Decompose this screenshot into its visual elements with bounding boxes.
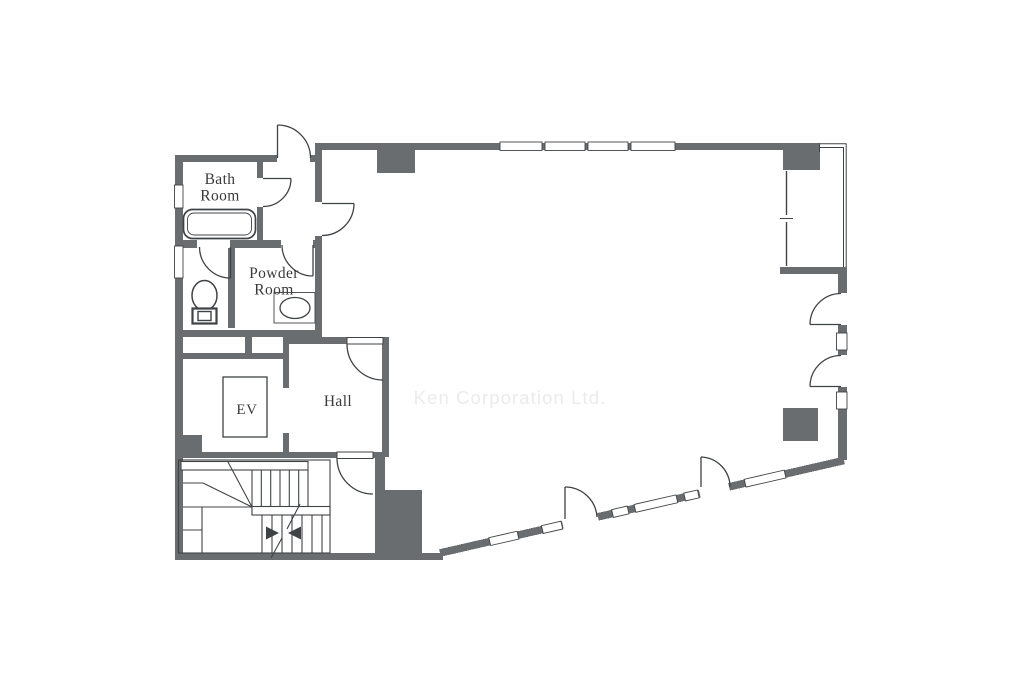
wall-segment [257,162,263,178]
wall-segment [382,337,389,457]
window [631,142,675,151]
wall-segment [175,353,285,359]
wall-segment [283,433,289,453]
balcony-outer-wall [820,144,847,267]
wall-segment [245,337,252,353]
bath-room-label: BathRoom [200,171,240,205]
windows-group [175,142,848,546]
wall-segment [230,240,281,248]
door-leaf [337,452,373,459]
window [744,470,786,487]
bathtub-icon [184,210,256,239]
wall-segment [780,267,847,274]
floorplan-svg: BathRoom PowderRoom EV Hall Ken Corporat… [0,0,1024,683]
pillar [783,143,820,170]
balcony-inner-wall [820,148,844,268]
door-opening [837,293,848,325]
diagonal-door-right [701,457,730,487]
floorplan-page: BathRoom PowderRoom EV Hall Ken Corporat… [0,0,1024,683]
window [489,531,519,545]
wall-segment [175,330,322,337]
window [634,495,678,512]
toilet-icon [192,281,217,324]
entrance-door [278,125,311,158]
window [545,142,585,151]
wall-segment [175,155,277,162]
pillar [178,435,202,452]
right-door-upper [810,294,841,325]
window [175,246,184,278]
wall-segment [373,452,385,458]
stair-direction-arrows [266,527,301,540]
walls-group [175,143,847,560]
window [175,185,184,208]
wall-segment [175,553,443,560]
hall-bottom-door-arc [337,458,373,494]
window [837,392,848,409]
door-opening [562,513,599,529]
window [684,490,699,501]
hall-top-door-arc [347,344,383,380]
right-door-lower [810,356,841,387]
wall-segment [315,236,322,337]
wall-segment [385,490,422,553]
door-leaf [347,338,383,345]
window [612,506,629,517]
pillar [377,150,415,173]
watermark: Ken Corporation Ltd. [414,387,607,408]
wall-segment [315,143,322,202]
wall-segment [257,207,263,240]
bath-door [263,179,291,207]
wall-segment [375,452,385,560]
interior-column [783,408,818,441]
ev-label: EV [236,402,257,418]
wall-segment [175,452,337,458]
staircase-icon [179,460,331,558]
window [837,333,848,350]
door-opening [699,483,730,498]
arrow-left-icon [288,527,301,540]
wall-segment [285,337,347,344]
toilet-door [200,247,231,278]
wall-segment [283,337,289,388]
hall-label: Hall [324,393,352,410]
window [541,521,562,533]
window [588,142,628,151]
wall-segment [228,248,235,328]
powder-room-label: PowderRoom [249,265,299,299]
door-opening [837,355,848,387]
core-door [322,204,354,236]
window [500,142,542,151]
